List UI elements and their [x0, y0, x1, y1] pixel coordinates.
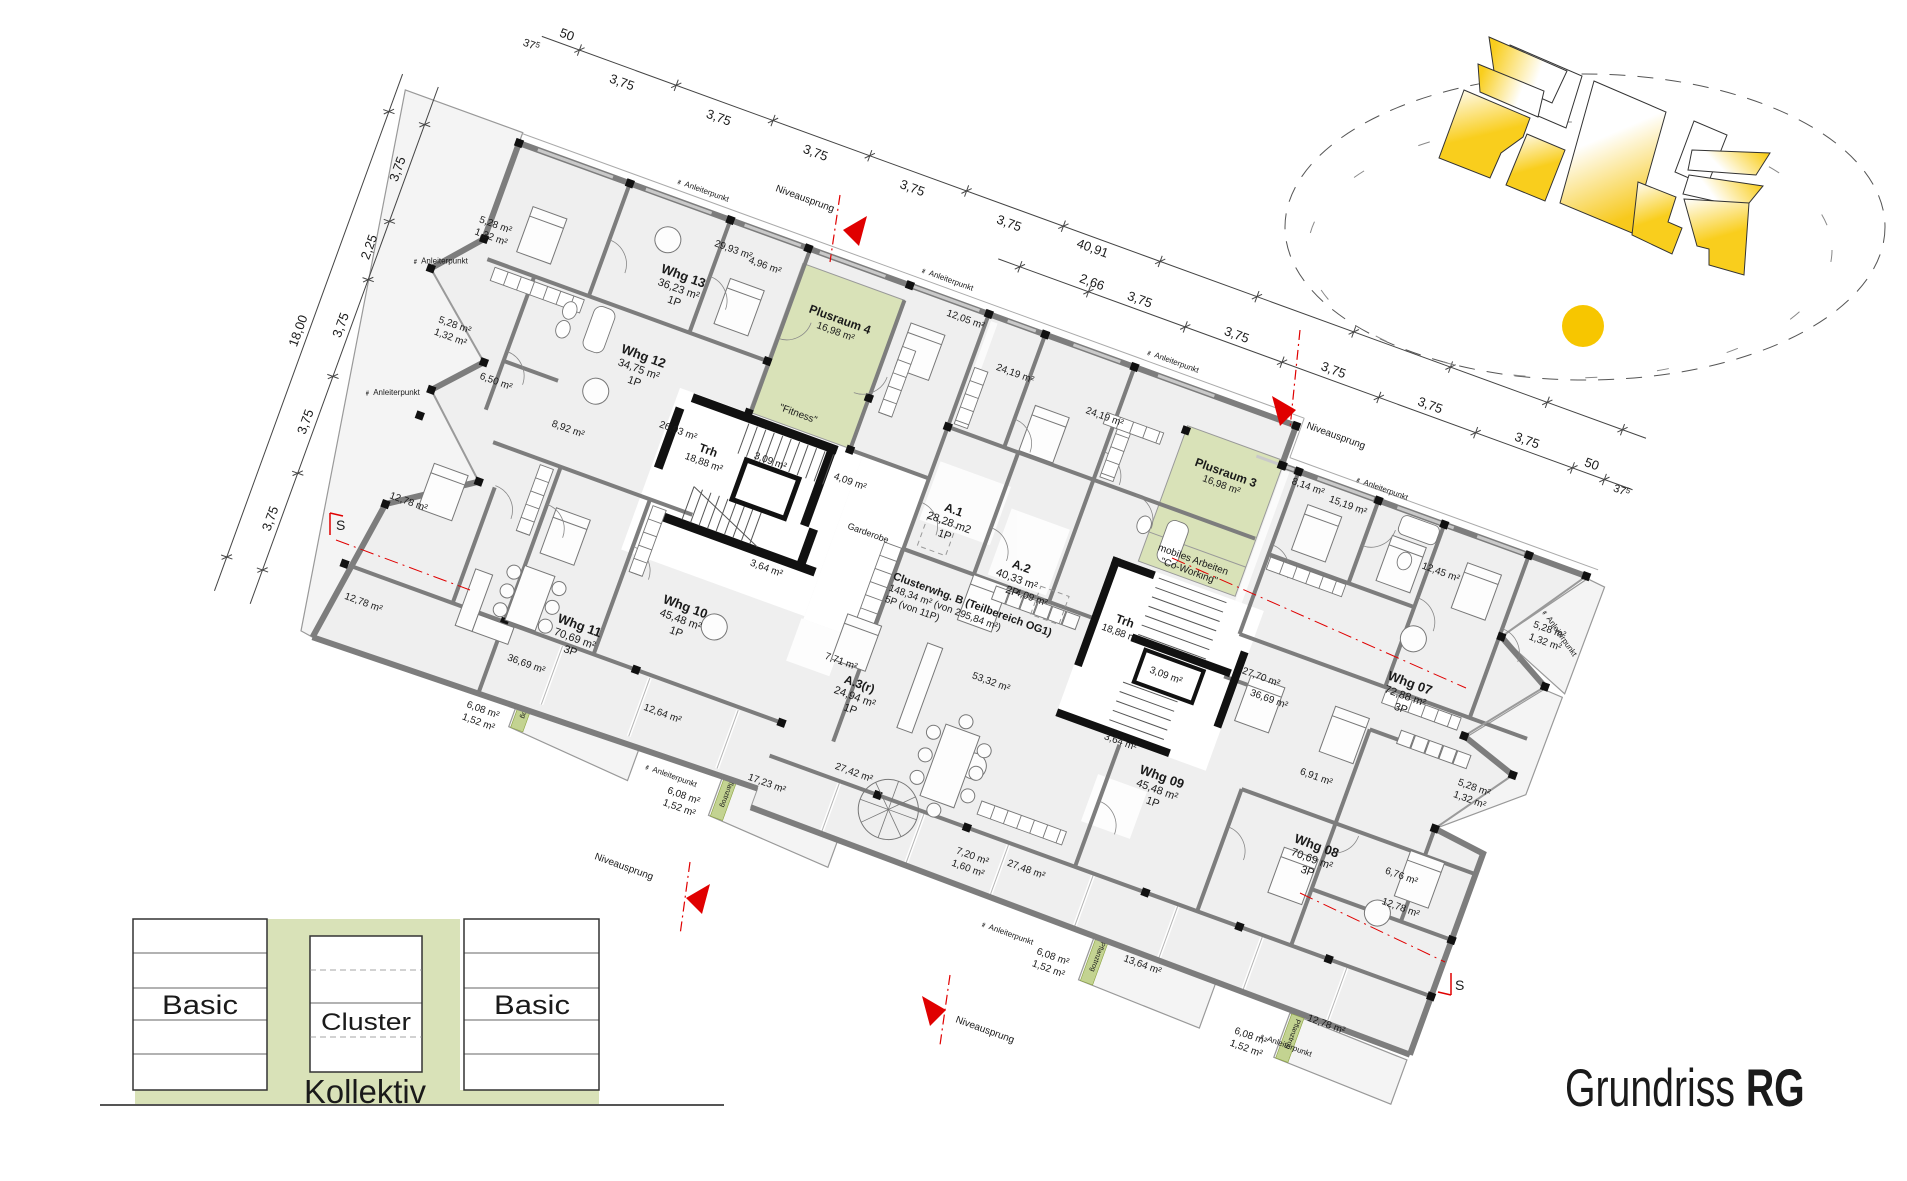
- svg-text:S: S: [336, 517, 345, 533]
- svg-text:﹟ Anleiterpunkt: ﹟ Anleiterpunkt: [363, 388, 420, 397]
- svg-text:Basic: Basic: [162, 990, 238, 1020]
- svg-text:Cluster: Cluster: [321, 1009, 411, 1036]
- svg-text:﹟ Anleiterpunkt: ﹟ Anleiterpunkt: [411, 256, 468, 265]
- svg-text:Grundriss RG: Grundriss RG: [1565, 1058, 1805, 1117]
- svg-text:S: S: [1455, 977, 1464, 993]
- svg-text:Basic: Basic: [494, 990, 570, 1020]
